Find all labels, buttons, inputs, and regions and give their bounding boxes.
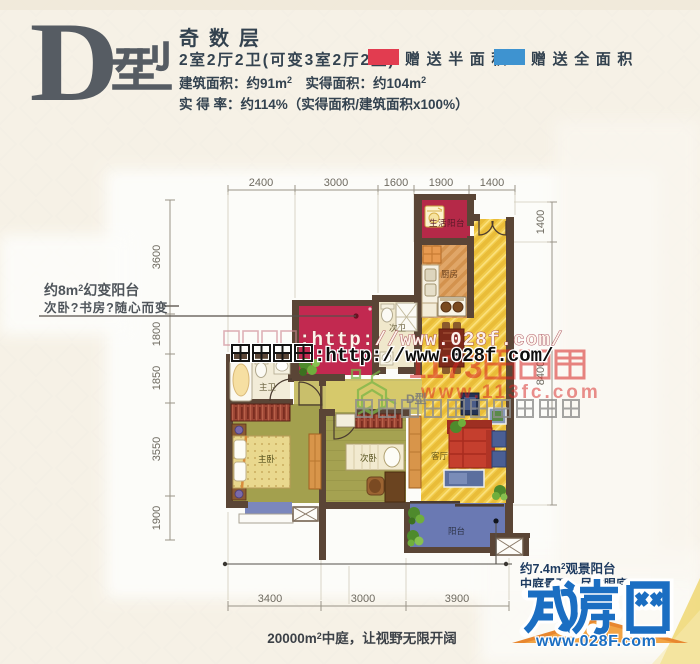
svg-text:约7.4m2观景阳台: 约7.4m2观景阳台 xyxy=(520,561,615,576)
svg-text:20000m2中庭，让视野无限开阔: 20000m2中庭，让视野无限开阔 xyxy=(267,630,457,646)
svg-text:约8m2幻变阳台: 约8m2幻变阳台 xyxy=(44,282,139,298)
svg-text:3600: 3600 xyxy=(151,245,163,269)
svg-text:客厅: 客厅 xyxy=(431,451,449,461)
svg-text::http://www.028f.com/: :http://www.028f.com/ xyxy=(314,345,553,367)
svg-text:D: D xyxy=(30,0,119,125)
svg-text:1900: 1900 xyxy=(429,177,453,189)
svg-text:奇数层: 奇数层 xyxy=(179,26,269,50)
svg-text:1850: 1850 xyxy=(151,366,163,390)
svg-text:1400: 1400 xyxy=(480,177,504,189)
svg-text:3000: 3000 xyxy=(324,177,348,189)
svg-text:厨房: 厨房 xyxy=(441,269,458,279)
svg-text:2400: 2400 xyxy=(249,177,273,189)
svg-text:3550: 3550 xyxy=(151,437,163,461)
svg-text:3900: 3900 xyxy=(445,593,469,605)
svg-text:次卧: 次卧 xyxy=(360,453,378,463)
svg-text:1600: 1600 xyxy=(384,177,408,189)
svg-text:实 得 率：约114%（实得面积/建筑面积x100%）: 实 得 率：约114%（实得面积/建筑面积x100%） xyxy=(179,96,469,112)
svg-text:www.028F.com: www.028F.com xyxy=(535,633,656,650)
svg-text:主卧: 主卧 xyxy=(258,454,276,464)
svg-text:次卧?书房?随心而变: 次卧?书房?随心而变 xyxy=(44,300,168,315)
svg-text:生活阳台: 生活阳台 xyxy=(429,218,465,228)
svg-text:主卫: 主卫 xyxy=(259,382,277,392)
svg-text:3400: 3400 xyxy=(258,593,282,605)
svg-text:2室2厅2卫(可变3室2厅2卫): 2室2厅2卫(可变3室2厅2卫) xyxy=(179,50,395,69)
svg-text:1800: 1800 xyxy=(151,322,163,346)
svg-text:D型: D型 xyxy=(406,391,427,406)
svg-text:3000: 3000 xyxy=(351,593,375,605)
svg-text:赠送全面积: 赠送全面积 xyxy=(531,50,639,68)
svg-text:建筑面积：约91m2 实得面积：约104m2: 建筑面积：约91m2 实得面积：约104m2 xyxy=(178,75,426,91)
svg-text:1400: 1400 xyxy=(535,210,547,234)
svg-text:阳台: 阳台 xyxy=(448,526,465,536)
svg-text:1900: 1900 xyxy=(151,506,163,530)
